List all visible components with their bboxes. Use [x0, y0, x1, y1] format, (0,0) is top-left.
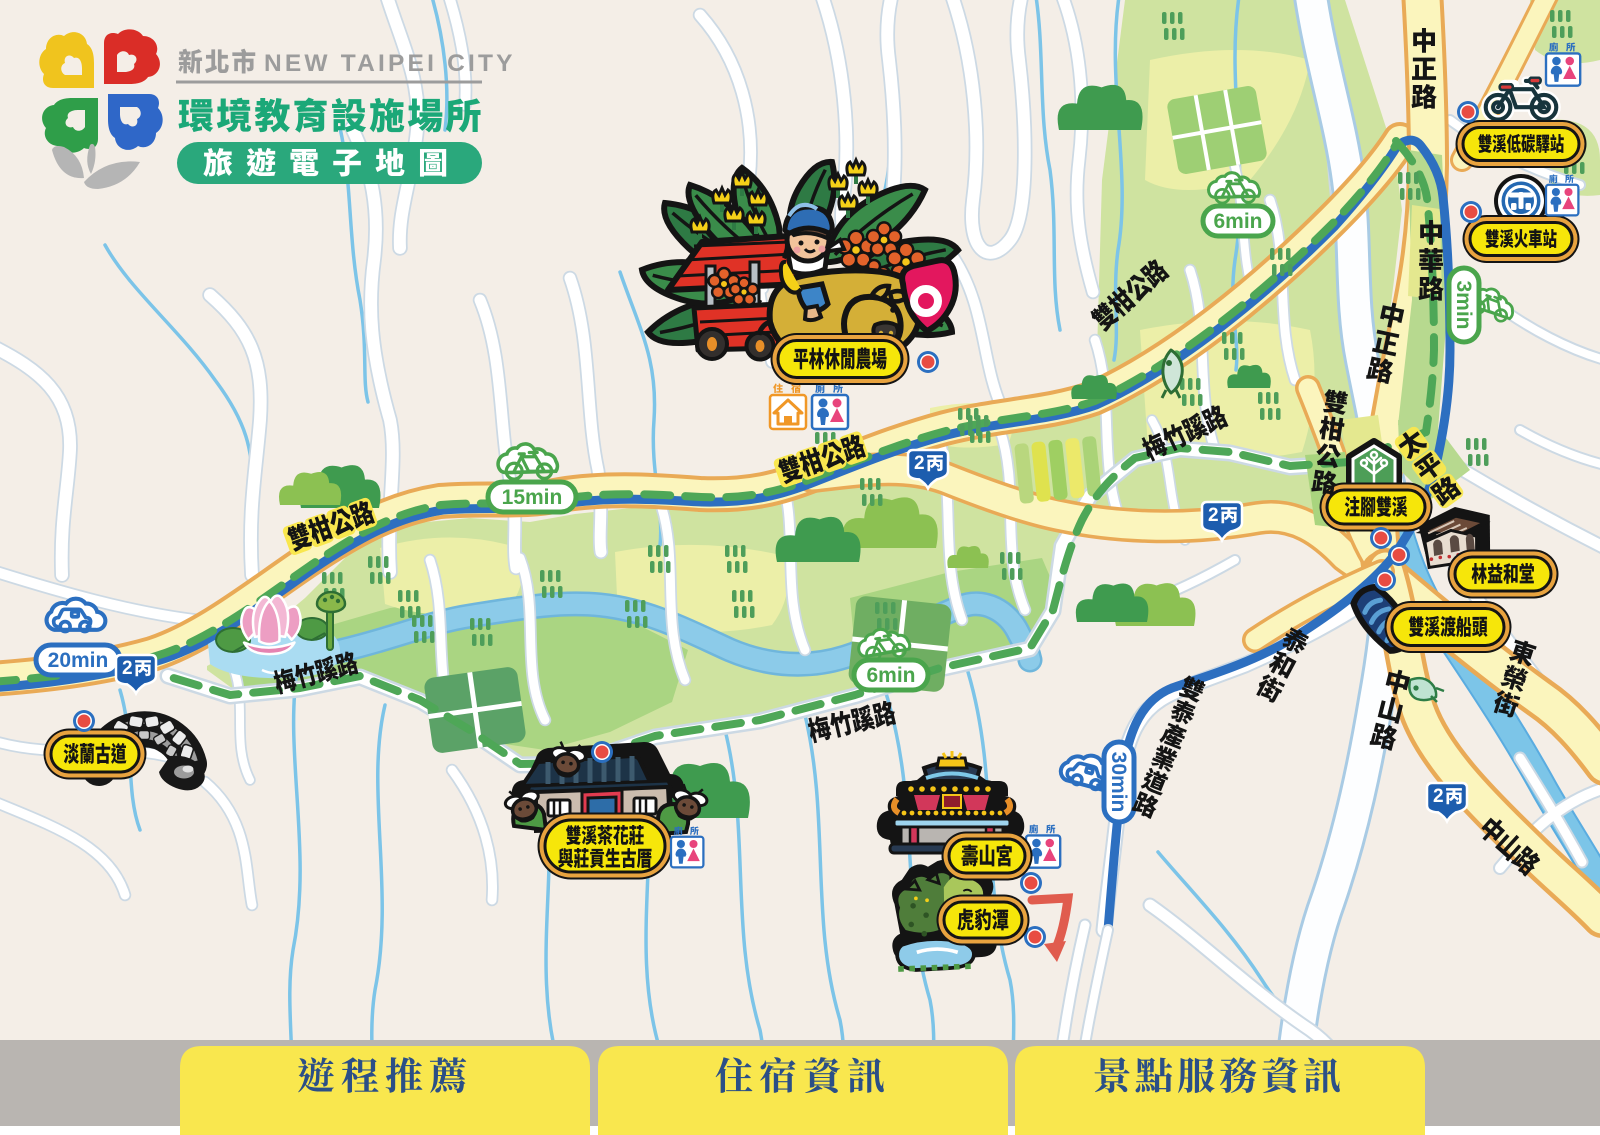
svg-text:20min: 20min	[48, 649, 109, 672]
svg-text:6min: 6min	[866, 664, 915, 687]
svg-text:2: 2	[1208, 505, 1219, 526]
svg-text:2: 2	[122, 658, 133, 679]
svg-text:NEW TAIPEI CITY: NEW TAIPEI CITY	[264, 50, 516, 77]
svg-text:30min: 30min	[1107, 752, 1130, 813]
svg-text:2: 2	[1433, 786, 1444, 807]
svg-text:3min: 3min	[1452, 280, 1475, 329]
svg-text:2: 2	[914, 453, 925, 474]
svg-text:15min: 15min	[502, 486, 563, 509]
svg-text:6min: 6min	[1213, 210, 1262, 233]
